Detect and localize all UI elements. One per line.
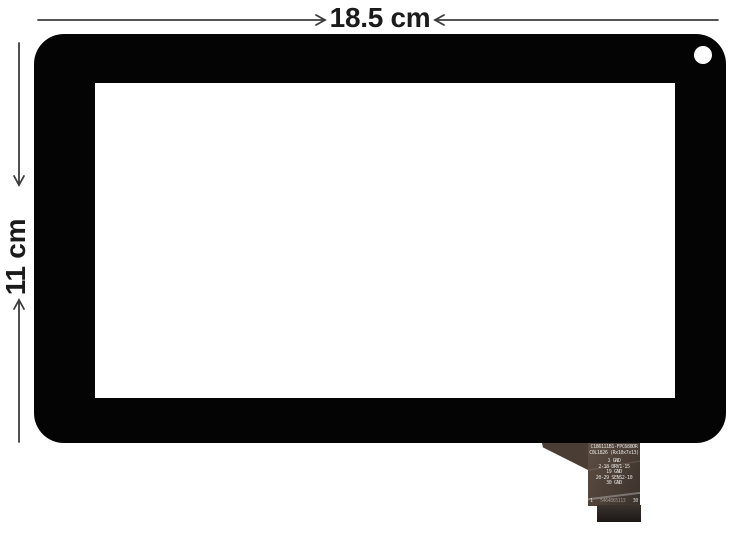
fpc-pinout-text: 1 GND 2-18 DRV1-15 19 GND 20-29 SENS2-10… (588, 459, 640, 487)
fpc-spec-text: C0L1826 (Rx10x7x13) (588, 451, 640, 457)
fpc-pin1-marker: 1 (590, 499, 593, 504)
fpc-cable-tab (542, 443, 588, 470)
fpc-cable: C186111B1-FPC680DR C0L1826 (Rx10x7x13) 1… (540, 442, 650, 528)
fpc-pin30-marker: 30 (633, 499, 638, 504)
camera-hole-circle (694, 46, 712, 64)
fpc-pin-line: 30 GND (588, 481, 640, 487)
digitizer-frame (34, 34, 726, 443)
fpc-connector-end (597, 505, 641, 522)
digitizer-screen-window (95, 83, 675, 398)
width-dimension-label: 18.5 cm (323, 2, 437, 34)
fpc-printed-text: C186111B1-FPC680DR C0L1826 (Rx10x7x13) 1… (588, 445, 640, 487)
fpc-serial-text: 5464865113 (600, 499, 625, 504)
fpc-pin-markers: 1 5464865113 30 (588, 499, 640, 504)
height-dimension-label: 11 cm (0, 207, 32, 307)
